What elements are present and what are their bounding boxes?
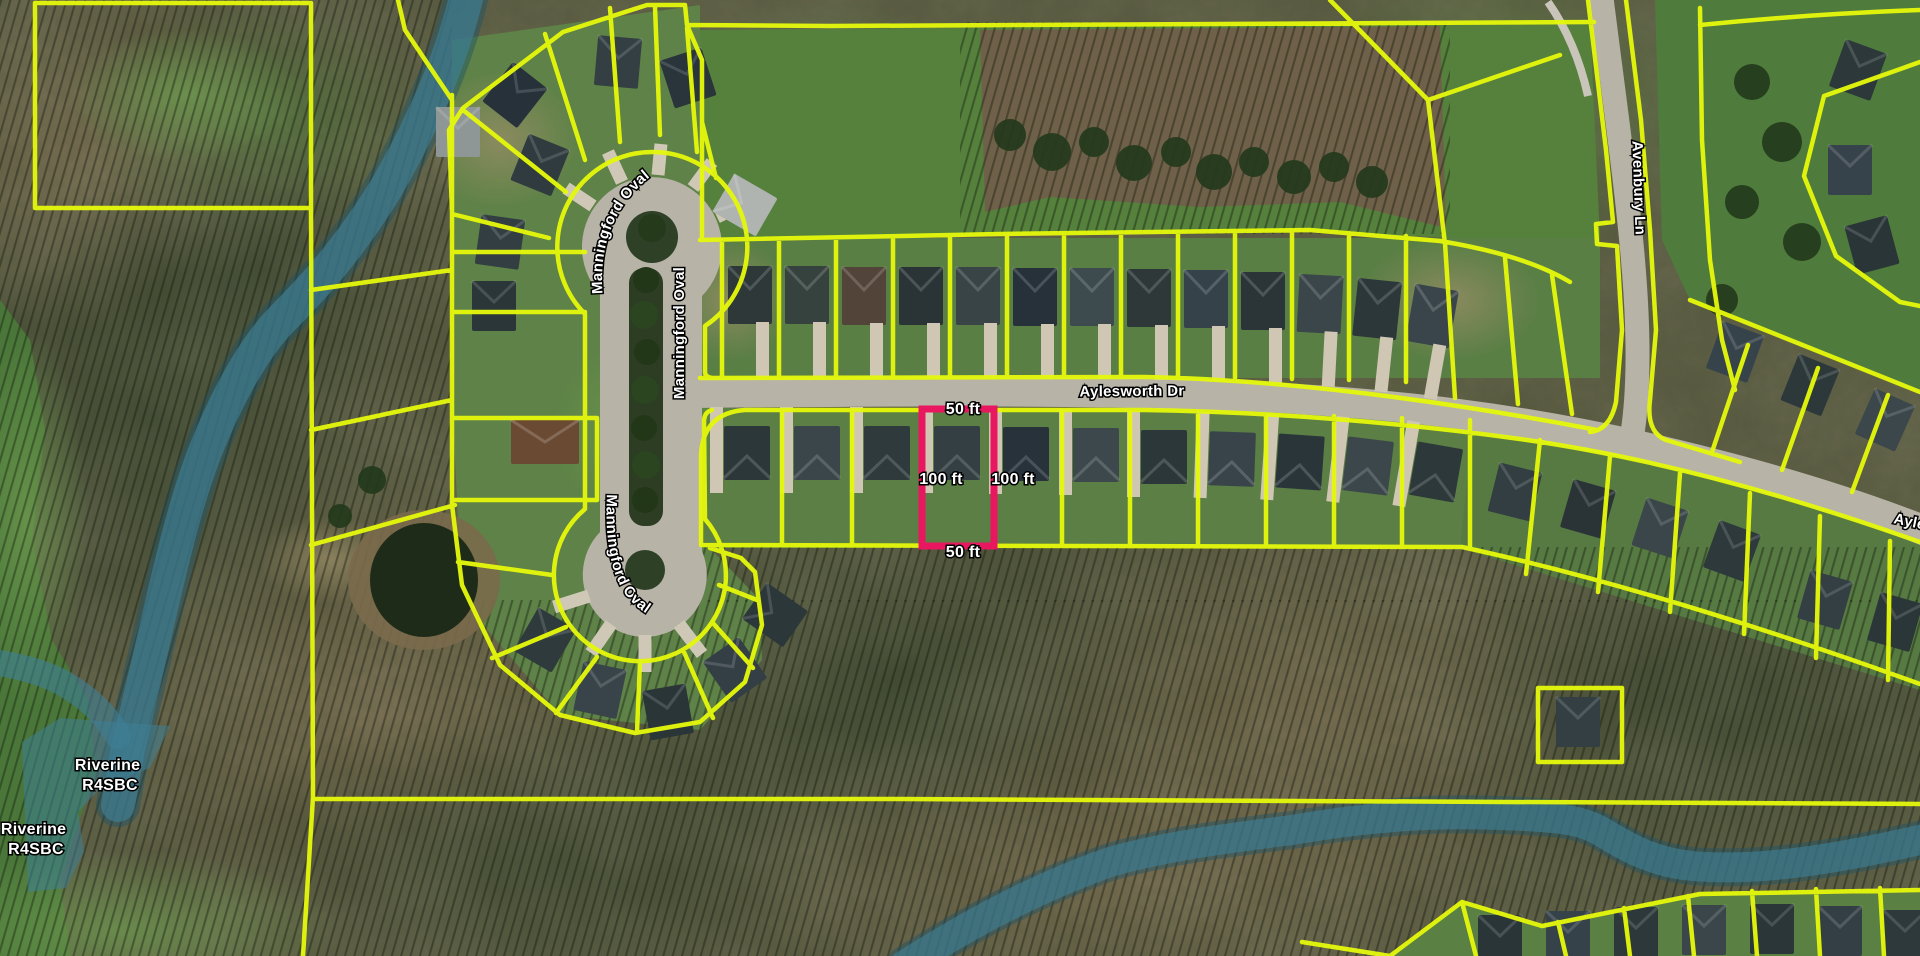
dimension-label-left: 100 ft [919,471,963,488]
dimension-label-bottom: 50 ft [946,544,981,561]
street-label-avenbury-ln: Avenbury Ln [1628,140,1648,235]
street-label-manningford-oval-middle: Manningford Oval [671,267,688,399]
dimension-label-right: 100 ft [991,471,1035,488]
dimension-label-top: 50 ft [946,401,981,418]
wetland-label-riverine-upper-line2: R4SBC [82,777,138,794]
wetland-label-riverine-upper-line1: Riverine [75,757,141,774]
wetland-label-riverine-lower-line2: R4SBC [8,841,64,858]
satellite-parcel-map[interactable]: Manningford Oval Manningford Oval Mannin… [0,0,1920,956]
street-label-aylesworth-dr: Aylesworth Dr [1079,383,1184,401]
wetland-label-riverine-lower-line1: Riverine [1,821,67,838]
map-canvas[interactable]: Manningford Oval Manningford Oval Mannin… [0,0,1920,956]
